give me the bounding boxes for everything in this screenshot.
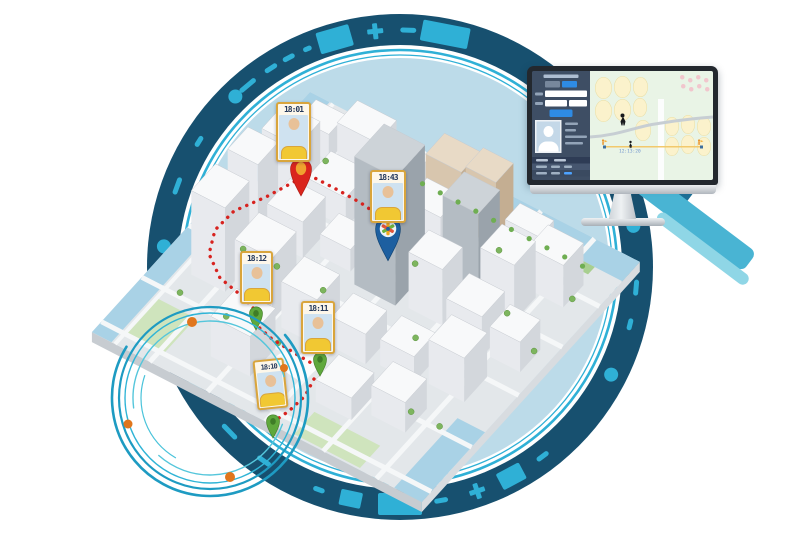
playback-timeline[interactable]: 12:13:20 <box>603 141 703 156</box>
avatar <box>264 374 276 387</box>
person-photo <box>279 115 308 159</box>
monitor-screen: 12:13:20 <box>532 71 713 180</box>
end-flag-icon <box>697 139 704 146</box>
app-side-panel <box>532 71 590 180</box>
desktop-monitor: 12:13:20 <box>527 66 718 226</box>
person-silhouette-icon <box>543 126 553 137</box>
tracking-badge[interactable]: 18:01 <box>276 102 311 162</box>
tab-trajectory[interactable] <box>562 81 577 88</box>
person-photo <box>304 314 332 351</box>
tracking-badge[interactable]: 18:10 <box>252 358 288 411</box>
tracking-badge[interactable]: 18:11 <box>301 301 335 354</box>
person-photo <box>243 264 270 301</box>
time-select[interactable] <box>569 100 587 107</box>
records-table <box>532 157 590 177</box>
badge-timestamp: 18:01 <box>284 105 303 115</box>
person-photo <box>257 371 285 407</box>
tracking-illustration: 18:01 18:43 18:12 18:11 18:10 <box>0 0 800 536</box>
monitor-stand <box>604 194 642 219</box>
map-road <box>590 71 713 180</box>
date-select[interactable] <box>545 100 567 107</box>
monitor-base <box>581 218 665 226</box>
avatar <box>251 267 262 279</box>
tracking-badge[interactable]: 18:43 <box>370 170 406 223</box>
monitor-bezel: 12:13:20 <box>527 66 718 185</box>
field-label <box>535 92 543 95</box>
avatar <box>383 186 394 198</box>
table-row[interactable] <box>532 170 590 177</box>
tracking-badge[interactable]: 18:12 <box>240 251 273 304</box>
person-photo <box>373 183 403 220</box>
query-button[interactable] <box>550 110 573 118</box>
person-details <box>565 120 587 153</box>
avatar <box>288 118 299 130</box>
mode-tabs <box>535 81 587 88</box>
timeline-time-label: 12:13:20 <box>619 149 641 154</box>
badge-timestamp: 18:11 <box>308 304 327 314</box>
person-photo-frame <box>535 120 562 153</box>
badge-timestamp: 18:43 <box>378 173 397 183</box>
badge-timestamp: 18:12 <box>247 254 266 264</box>
app-map-area[interactable]: 12:13:20 <box>590 71 713 180</box>
monitor-chin <box>530 185 716 194</box>
app-title-placeholder <box>544 75 579 79</box>
timeline-slider-handle[interactable] <box>628 141 633 149</box>
search-input[interactable] <box>545 91 587 98</box>
detail-link[interactable] <box>564 172 572 175</box>
tab-realtime[interactable] <box>545 81 560 88</box>
avatar <box>313 317 324 329</box>
timeline-track[interactable] <box>604 146 702 148</box>
field-label <box>535 102 543 105</box>
start-flag-icon <box>601 139 608 146</box>
walking-person-icon <box>618 113 627 126</box>
